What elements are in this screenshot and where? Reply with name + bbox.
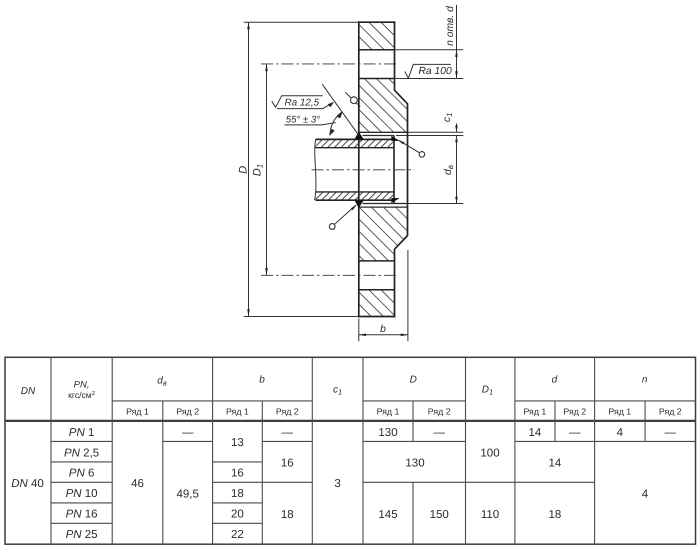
svg-text:dв: dв (157, 375, 167, 387)
svg-text:100: 100 (480, 447, 499, 459)
svg-text:DN 40: DN 40 (11, 478, 44, 490)
svg-text:145: 145 (378, 509, 397, 521)
svg-text:Ряд 2: Ряд 2 (563, 407, 586, 417)
svg-text:18: 18 (231, 488, 244, 500)
svg-text:Ряд 1: Ряд 1 (126, 407, 149, 417)
svg-text:3: 3 (334, 478, 340, 490)
svg-text:4: 4 (617, 427, 624, 439)
svg-text:b: b (259, 375, 265, 386)
svg-text:—: — (665, 427, 677, 439)
svg-text:—: — (433, 427, 445, 439)
svg-text:PN 6: PN 6 (69, 468, 95, 480)
svg-text:49,5: 49,5 (177, 488, 199, 500)
svg-text:PN 25: PN 25 (66, 529, 98, 541)
svg-text:DN: DN (21, 386, 36, 397)
svg-text:4: 4 (642, 488, 649, 500)
svg-text:130: 130 (378, 427, 397, 439)
svg-text:14: 14 (529, 427, 542, 439)
svg-text:16: 16 (281, 458, 294, 470)
svg-text:c1: c1 (333, 385, 342, 397)
svg-text:Ra 12,5: Ra 12,5 (285, 98, 320, 109)
svg-text:—: — (569, 427, 581, 439)
svg-text:14: 14 (549, 458, 562, 470)
svg-text:16: 16 (231, 468, 244, 480)
svg-text:—: — (182, 427, 194, 439)
svg-text:n: n (642, 375, 648, 386)
svg-text:55° ± 3°: 55° ± 3° (286, 114, 320, 125)
svg-text:22: 22 (231, 529, 244, 541)
svg-text:PN 10: PN 10 (66, 488, 98, 500)
svg-text:D: D (410, 375, 417, 386)
svg-text:Ряд 2: Ряд 2 (428, 407, 451, 417)
svg-text:n отв. d: n отв. d (445, 6, 456, 46)
svg-text:d: d (552, 375, 558, 386)
svg-text:18: 18 (281, 509, 294, 521)
svg-text:Ряд 1: Ряд 1 (523, 407, 546, 417)
svg-text:dв: dв (443, 165, 455, 175)
svg-text:Ряд 1: Ряд 1 (608, 407, 631, 417)
svg-text:Ряд 1: Ряд 1 (226, 407, 249, 417)
svg-text:46: 46 (131, 478, 144, 490)
svg-text:c1: c1 (442, 112, 454, 122)
svg-text:PN 16: PN 16 (66, 509, 98, 521)
svg-text:Ряд 1: Ряд 1 (377, 407, 400, 417)
svg-text:—: — (282, 427, 294, 439)
svg-text:D1: D1 (482, 385, 493, 397)
svg-text:b: b (380, 324, 386, 335)
svg-text:D1: D1 (252, 164, 265, 176)
svg-text:130: 130 (405, 458, 424, 470)
svg-text:18: 18 (549, 509, 562, 521)
svg-text:кгс/см2: кгс/см2 (68, 390, 96, 400)
svg-text:PN 1: PN 1 (69, 427, 95, 439)
svg-text:Ряд 2: Ряд 2 (659, 407, 682, 417)
svg-text:20: 20 (231, 509, 244, 521)
svg-text:110: 110 (481, 509, 499, 521)
svg-text:PN,: PN, (74, 379, 90, 390)
svg-text:D: D (238, 166, 250, 174)
svg-text:150: 150 (430, 509, 449, 521)
svg-text:13: 13 (231, 437, 244, 449)
svg-text:Ряд 2: Ряд 2 (276, 407, 299, 417)
svg-text:PN 2,5: PN 2,5 (64, 447, 99, 459)
svg-text:Ra 100: Ra 100 (419, 66, 452, 77)
svg-text:Ряд 2: Ряд 2 (176, 407, 199, 417)
